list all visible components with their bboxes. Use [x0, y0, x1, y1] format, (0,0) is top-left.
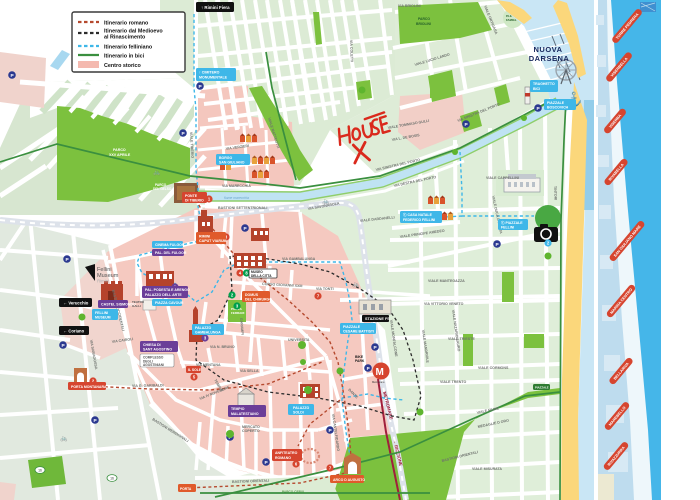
svg-text:VIA G. GARIBALDI: VIA G. GARIBALDI	[132, 383, 164, 388]
svg-text:CAPUT VIARUM: CAPUT VIARUM	[199, 239, 227, 243]
svg-text:BOSCOVICH: BOSCOVICH	[547, 106, 569, 110]
svg-text:DOMUS: DOMUS	[245, 293, 259, 297]
svg-text:AGOSTINIANI: AGOSTINIANI	[143, 363, 164, 367]
svg-text:VIA BRIOLINI: VIA BRIOLINI	[398, 4, 421, 8]
svg-text:PIAZZALE: PIAZZALE	[343, 325, 361, 329]
svg-text:Itinerario in bici: Itinerario in bici	[104, 53, 145, 59]
svg-text:PALAZZO: PALAZZO	[293, 406, 310, 410]
svg-text:TRAGHETTO: TRAGHETTO	[533, 82, 555, 86]
svg-text:Centro storico: Centro storico	[104, 63, 142, 69]
svg-text:fiume marecchia: fiume marecchia	[224, 196, 249, 200]
svg-text:16: 16	[110, 477, 114, 481]
svg-text:Itinerario felliniano: Itinerario felliniano	[104, 44, 153, 50]
svg-text:BICI: BICI	[533, 87, 540, 91]
svg-text:CASTEL SISMONDO: CASTEL SISMONDO	[101, 303, 136, 307]
svg-text:Metromare: Metromare	[372, 380, 385, 384]
svg-text:ROMANO: ROMANO	[275, 456, 291, 460]
svg-text:VIA GAMBALUNGA: VIA GAMBALUNGA	[282, 257, 316, 261]
svg-text:M: M	[376, 367, 384, 378]
svg-text:DELLA CITTA: DELLA CITTA	[251, 274, 272, 278]
svg-text:MALATESTIANO: MALATESTIANO	[231, 412, 259, 416]
svg-text:DI TIBERIO: DI TIBERIO	[185, 199, 204, 203]
svg-text:VIALE TRIESTE: VIALE TRIESTE	[448, 337, 475, 341]
svg-text:al Rinascimento: al Rinascimento	[104, 34, 146, 40]
svg-text:🚲: 🚲	[352, 282, 360, 288]
svg-text:VIALE CAPPELLINI: VIALE CAPPELLINI	[486, 176, 519, 180]
svg-text:ⓒ PIAZZALE: ⓒ PIAZZALE	[501, 220, 523, 225]
svg-text:FEDERICO FELLINI: FEDERICO FELLINI	[403, 218, 435, 222]
svg-text:PAL. DEL FULGOR: PAL. DEL FULGOR	[155, 251, 187, 255]
svg-text:UNIVERSITA: UNIVERSITA	[288, 338, 310, 342]
svg-text:ⓒ CASA NATALE: ⓒ CASA NATALE	[403, 212, 433, 217]
svg-text:PONTE: PONTE	[185, 194, 198, 198]
svg-text:← Verucchio: ← Verucchio	[63, 301, 89, 306]
svg-text:← Coriano: ← Coriano	[63, 329, 85, 334]
svg-text:PIAZZALE: PIAZZALE	[547, 101, 565, 105]
svg-text:PALAZZO DELL ARTE: PALAZZO DELL ARTE	[145, 293, 182, 297]
svg-text:CESARE BATTISTI: CESARE BATTISTI	[343, 330, 374, 334]
svg-text:PARCO: PARCO	[113, 148, 126, 152]
svg-text:FELLINI: FELLINI	[95, 311, 108, 315]
svg-text:VIA N. BRUNO: VIA N. BRUNO	[210, 345, 235, 349]
svg-text:NUOVA: NUOVA	[533, 45, 562, 54]
svg-text:TEMPIO: TEMPIO	[231, 407, 245, 411]
svg-text:COPERTO: COPERTO	[242, 429, 260, 433]
svg-text:VIALE CORMONS: VIALE CORMONS	[478, 366, 509, 370]
svg-text:🚲: 🚲	[153, 170, 161, 176]
svg-text:🚲: 🚲	[60, 436, 68, 442]
svg-text:VIA COLETTI: VIA COLETTI	[349, 40, 354, 62]
svg-text:DARSENA: DARSENA	[529, 54, 570, 63]
svg-text:DEL GELSO: DEL GELSO	[153, 187, 172, 191]
svg-text:16: 16	[38, 469, 42, 473]
svg-text:MONUMENTALE: MONUMENTALE	[199, 76, 228, 80]
svg-text:Rimini: Rimini	[97, 279, 109, 284]
svg-text:VIA TONTI: VIA TONTI	[316, 287, 334, 291]
svg-text:CHIESA DI: CHIESA DI	[143, 343, 161, 347]
svg-text:PARCO: PARCO	[418, 17, 430, 21]
svg-text:↑ Rimini Fiera: ↑ Rimini Fiera	[201, 5, 230, 10]
svg-text:Itinerario romano: Itinerario romano	[104, 20, 149, 26]
svg-text:PARK: PARK	[355, 359, 365, 363]
svg-text:VIA SELLA: VIA SELLA	[240, 369, 259, 373]
svg-text:PIAZZA CAVOUR: PIAZZA CAVOUR	[155, 301, 184, 305]
svg-text:VIALE MISURATA: VIALE MISURATA	[472, 467, 502, 471]
svg-text:BRIOLINI: BRIOLINI	[416, 22, 431, 26]
svg-text:GAMBALUNGA: GAMBALUNGA	[195, 331, 221, 335]
svg-text:SAN GIULIANO: SAN GIULIANO	[219, 161, 245, 165]
svg-text:BASTIONI SETTENTRIONALI: BASTIONI SETTENTRIONALI	[218, 206, 267, 210]
svg-text:PIAZZALE: PIAZZALE	[535, 386, 549, 390]
svg-text:TINTORI: TINTORI	[553, 186, 557, 200]
svg-text:CINEMA FULGOR: CINEMA FULGOR	[155, 243, 185, 247]
svg-text:XXV APRILE: XXV APRILE	[109, 153, 131, 157]
svg-text:DEL CHIRURGO: DEL CHIRURGO	[245, 298, 272, 302]
svg-text:VIALE TRENTO: VIALE TRENTO	[440, 380, 466, 384]
svg-text:RIMINI: RIMINI	[199, 234, 210, 238]
svg-text:PALAZZO: PALAZZO	[195, 326, 212, 330]
svg-text:ANFITEATRO: ANFITEATRO	[275, 451, 298, 455]
svg-text:GALLI: GALLI	[132, 304, 141, 308]
svg-text:SOLDI: SOLDI	[293, 411, 304, 415]
svg-text:ARCO D AUGUSTO: ARCO D AUGUSTO	[333, 478, 365, 482]
svg-text:P: P	[367, 366, 370, 371]
svg-text:VIALE MANTEGAZZA: VIALE MANTEGAZZA	[428, 279, 465, 283]
svg-text:PAL. PODESTA E ARENGO: PAL. PODESTA E ARENGO	[145, 288, 190, 292]
svg-text:VIA MARECCHIA: VIA MARECCHIA	[222, 184, 251, 188]
svg-text:↑ CIMITERO: ↑ CIMITERO	[199, 71, 220, 75]
svg-text:STAZIONE FS: STAZIONE FS	[365, 317, 390, 321]
svg-text:SANT AGOSTINO: SANT AGOSTINO	[143, 348, 172, 352]
svg-text:BORGO: BORGO	[219, 156, 233, 160]
svg-text:VIA VITTORIO VENETO: VIA VITTORIO VENETO	[424, 302, 464, 306]
svg-text:FERRARI: FERRARI	[231, 311, 244, 315]
svg-text:IL SOLE: IL SOLE	[188, 368, 202, 372]
svg-text:MUSEUM: MUSEUM	[95, 316, 111, 320]
svg-text:PORTA: PORTA	[180, 487, 192, 491]
svg-text:PORTA MONTANARA: PORTA MONTANARA	[71, 385, 107, 389]
svg-text:FELLINI: FELLINI	[501, 226, 514, 230]
